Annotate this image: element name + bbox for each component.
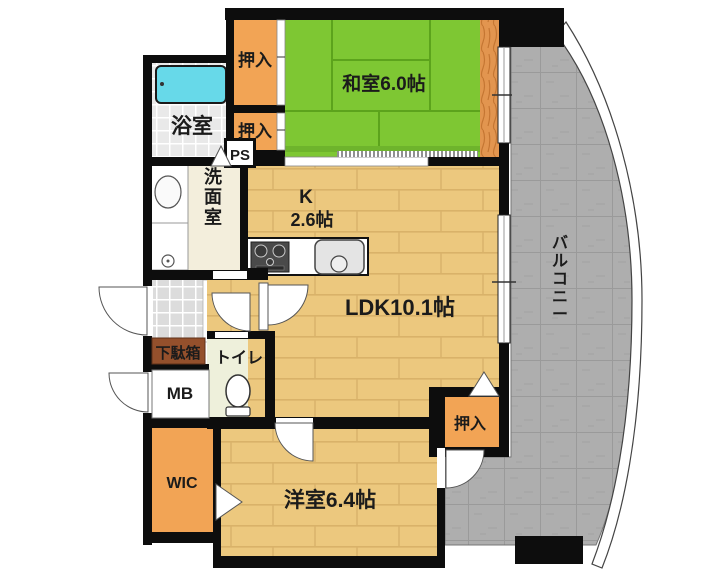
oshiire-top-label: 押入 [238, 50, 272, 70]
sink-drain [331, 256, 347, 272]
wall-segment [207, 417, 437, 429]
wall-segment [240, 157, 248, 272]
toilet-doorway [215, 332, 248, 338]
wood-veranda-strip [480, 20, 500, 157]
washer-drain-dot [167, 260, 170, 263]
wall-segment [437, 488, 445, 568]
ldk-label: LDK10.1帖 [345, 295, 455, 320]
getabako-label: 下駄箱 [155, 344, 200, 362]
kitchen-size-label: 2.6帖 [290, 209, 333, 230]
wall-segment [428, 157, 500, 166]
wic-label: WIC [166, 475, 198, 492]
stove-burner [273, 245, 285, 257]
wall-segment [499, 343, 509, 457]
washroom-label: 洗面室 [204, 166, 222, 227]
balcony-doorway [437, 448, 445, 488]
tatami-threshold-hatch [337, 151, 478, 157]
wall-segment [234, 105, 285, 113]
toilet-label: トイレ [215, 350, 263, 367]
wall-segment [213, 556, 445, 568]
washitsu-south-slider [285, 157, 428, 166]
bathtub-drain [160, 82, 164, 86]
washroom-doorway [213, 271, 247, 279]
stove-burner [255, 245, 267, 257]
kitchen-label: K [299, 187, 313, 208]
wall-segment [429, 387, 439, 457]
wall-segment [143, 55, 232, 63]
oshiire-mid-label: 押入 [238, 121, 272, 141]
ldk-door-leaf [259, 283, 268, 330]
toilet-bowl [226, 375, 250, 407]
vanity-sink [155, 176, 181, 208]
wall-segment [225, 8, 520, 20]
washitsu-label: 和室6.0帖 [342, 72, 425, 95]
balcony-label: バルコニー [552, 234, 568, 324]
wall-block-bottom-right [515, 536, 583, 564]
mb-label: MB [167, 384, 193, 403]
wall-segment [143, 532, 220, 543]
entrance-tile-floor [152, 280, 203, 338]
bathtub [156, 66, 226, 103]
floor-plan-drawing: 和室6.0帖 押入 押入 押入 浴室 PS 洗面室 K 2.6帖 LDK10.1… [0, 0, 720, 576]
toilet-tank [226, 407, 250, 416]
floor-plan-page: 和室6.0帖 押入 押入 押入 浴室 PS 洗面室 K 2.6帖 LDK10.1… [0, 0, 720, 576]
wall-segment [499, 143, 509, 215]
western-room-label: 洋室6.4帖 [284, 488, 376, 512]
entrance-door-swing [99, 287, 147, 335]
wall-block-top-right [500, 8, 564, 47]
bathroom-label: 浴室 [171, 114, 213, 138]
wall-segment [143, 364, 209, 370]
stove-burner-small [267, 259, 274, 266]
wall-segment [265, 331, 275, 418]
oshiire-ldk-label: 押入 [454, 414, 486, 433]
ps-label: PS [230, 147, 250, 164]
fusuma-top [277, 20, 285, 105]
fusuma-mid [277, 113, 285, 150]
mb-door-swing [109, 373, 148, 412]
wall-segment [499, 13, 509, 47]
